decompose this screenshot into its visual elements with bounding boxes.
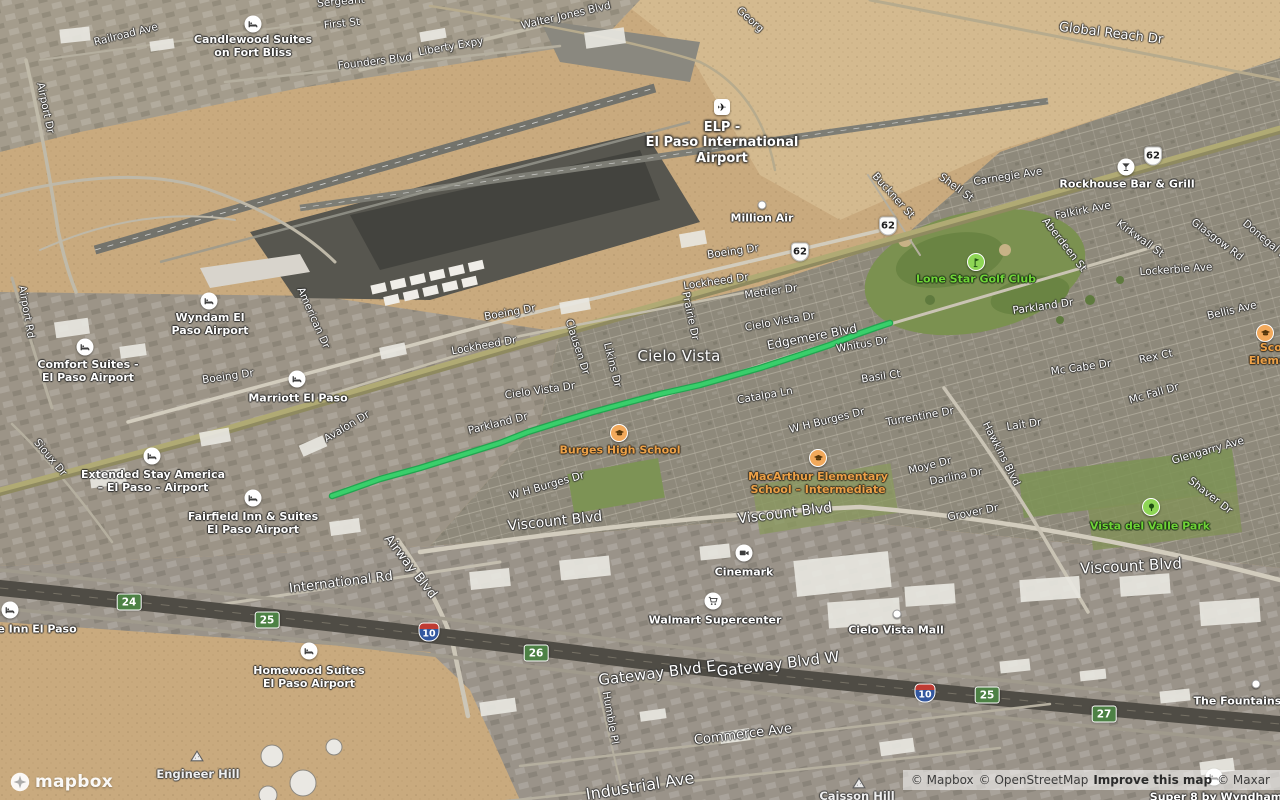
label-gateway-blvd-e: Gateway Blvd E <box>597 657 716 689</box>
mapbox-logo[interactable]: mapbox <box>10 772 113 792</box>
label-glengarry-ave: Glengarry Ave <box>1170 435 1245 468</box>
lodging-icon <box>2 602 19 619</box>
exit-24-badge: 24 <box>117 594 142 611</box>
label-cielo-vista-dr: Cielo Vista Dr <box>504 380 576 402</box>
hill-icon <box>852 777 866 789</box>
map-labels-layer: Railroad AveFirst StSergeantFounders Blv… <box>0 0 1280 800</box>
tree-icon <box>1142 498 1160 516</box>
us-62-shield: 62 <box>1144 147 1162 166</box>
label-mc-cabe-dr: Mc Cabe Dr <box>1050 358 1112 379</box>
label-sioux-dr: Sioux Dr <box>31 437 69 479</box>
label-american-dr: American Dr <box>294 285 332 350</box>
label-kirkwall-st: Kirkwall St <box>1114 218 1166 261</box>
label-buckner-st: Buckner St <box>869 171 917 222</box>
label-cinemark: Cinemark <box>715 565 774 578</box>
label-super-8-by-wyndham: Super 8 by Wyndham <box>1150 790 1280 800</box>
label-catalpa-ln: Catalpa Ln <box>736 385 794 407</box>
label-vista-del-valle-park: Vista del Valle Park <box>1090 519 1210 532</box>
attribution-bar: © Mapbox © OpenStreetMap Improve this ma… <box>903 770 1280 790</box>
school-icon <box>809 449 827 467</box>
label-comfort-suites: Comfort Suites -El Paso Airport <box>37 358 138 384</box>
label-airport-dr: Airport Dr <box>33 81 56 134</box>
mapbox-wordmark: mapbox <box>35 772 113 792</box>
label-bellis-ave: Bellis Ave <box>1206 299 1258 323</box>
dot-icon <box>1252 680 1261 689</box>
label-e-inn-el-paso: e Inn El Paso <box>0 622 77 635</box>
label-w-h-burges-dr: W H Burges Dr <box>508 469 586 502</box>
label-caisson-hill: Caisson Hill <box>819 790 894 800</box>
map-canvas[interactable]: Railroad AveFirst StSergeantFounders Blv… <box>0 0 1280 800</box>
label-railroad-ave: Railroad Ave <box>93 21 160 49</box>
label-elp: ELP -El Paso InternationalAirport <box>646 120 799 166</box>
label-mettler-dr: Mettler Dr <box>744 282 798 302</box>
label-glasgow-rd: Glasgow Rd <box>1188 216 1245 263</box>
label-shaver-dr: Shaver Dr <box>1185 475 1234 517</box>
exit-25-badge: 25 <box>255 612 280 629</box>
attribution-maxar-link[interactable]: © Maxar <box>1217 773 1270 787</box>
label-turrentine-dr: Turrentine Dr <box>885 405 955 429</box>
label-liberty-expy: Liberty Expy <box>418 35 485 59</box>
dot-icon <box>758 201 767 210</box>
label-mc-fall-dr: Mc Fall Dr <box>1128 381 1181 407</box>
label-burges-high-school: Burges High School <box>559 443 680 456</box>
label-carnegie-ave: Carnegie Ave <box>973 165 1044 188</box>
label-cielo-vista-dr: Cielo Vista Dr <box>744 310 816 335</box>
label-clausen-dr: Clausen Dr <box>562 318 592 377</box>
label-the-fountains-a: The Fountains a <box>1194 694 1280 707</box>
label-scotsdale: ScotsdaleElementary S <box>1249 341 1280 367</box>
label-donegal-st: Donegal St <box>1240 218 1280 265</box>
label-rockhouse-bar-grill: Rockhouse Bar & Grill <box>1059 177 1194 190</box>
airport-icon: ✈ <box>714 99 730 115</box>
interstate-10-shield: 10 <box>419 623 440 642</box>
label-viscount-blvd: Viscount Blvd <box>1080 554 1183 577</box>
label-candlewood-suites: Candlewood Suiteson Fort Bliss <box>194 33 312 59</box>
label-avalon-dr: Avalon Dr <box>322 408 372 445</box>
us-62-shield: 62 <box>879 217 897 236</box>
label-marriott-el-paso: Marriott El Paso <box>248 391 347 404</box>
lodging-icon <box>201 293 218 310</box>
exit-26-badge: 26 <box>524 645 549 662</box>
label-million-air: Million Air <box>731 211 794 224</box>
label-grover-dr: Grover Dr <box>947 502 1000 524</box>
label-fairfield-inn-suites: Fairfield Inn & SuitesEl Paso Airport <box>188 510 318 536</box>
school-icon <box>1256 324 1274 342</box>
label-viscount-blvd: Viscount Blvd <box>507 509 603 536</box>
label-first-st: First St <box>323 16 360 32</box>
attribution-mapbox-link[interactable]: © Mapbox <box>911 773 974 787</box>
label-viscount-blvd: Viscount Blvd <box>737 500 833 528</box>
mapbox-logo-icon <box>10 772 30 792</box>
label-sergeant: Sergeant <box>317 0 366 10</box>
label-founders-blvd: Founders Blvd <box>337 51 413 73</box>
label-parkland-dr: Parkland Dr <box>467 410 529 437</box>
label-wyndam-el: Wyndam ElPaso Airport <box>172 311 249 337</box>
label-lait-dr: Lait Dr <box>1006 416 1042 433</box>
lodging-icon <box>289 371 306 388</box>
cinema-icon <box>736 545 753 562</box>
label-boeing-dr: Boeing Dr <box>706 242 759 262</box>
label-lockerbie-ave: Lockerbie Ave <box>1139 261 1213 279</box>
label-likins-dr: Likins Dr <box>600 341 623 388</box>
label-lockheed-dr: Lockheed Dr <box>450 334 517 358</box>
lodging-icon <box>245 490 262 507</box>
golf-icon <box>967 253 985 271</box>
label-edgemere-blvd: Edgemere Blvd <box>766 321 859 353</box>
label-macarthur-elementary: MacArthur ElementarySchool – Intermediat… <box>748 470 888 496</box>
label-cielo-vista-mall: Cielo Vista Mall <box>848 623 944 636</box>
label-international-rd: International Rd <box>288 569 394 597</box>
label-gateway-blvd-w: Gateway Blvd W <box>716 648 841 681</box>
label-whitus-dr: Whitus Dr <box>835 334 888 355</box>
label-boeing-dr: Boeing Dr <box>201 367 254 387</box>
label-global-reach-dr: Global Reach Dr <box>1058 20 1164 48</box>
exit-27-badge: 27 <box>1092 706 1117 723</box>
label-boeing-dr: Boeing Dr <box>483 302 536 323</box>
label-cielo-vista: Cielo Vista <box>637 347 720 365</box>
label-w-h-burges-dr: W H Burges Dr <box>788 406 866 437</box>
label-basil-ct: Basil Ct <box>860 368 901 386</box>
lodging-icon <box>245 16 262 33</box>
dot-icon <box>893 610 902 619</box>
label-falkirk-ave: Falkirk Ave <box>1054 199 1112 222</box>
improve-this-map-link[interactable]: Improve this map <box>1093 773 1212 787</box>
exit-25-badge: 25 <box>975 687 1000 704</box>
label-prairie-dr: Prairie Dr <box>679 291 702 342</box>
lodging-icon <box>301 643 318 660</box>
label-homewood-suites: Homewood SuitesEl Paso Airport <box>253 664 364 690</box>
label-airway-blvd: Airway Blvd <box>380 532 440 602</box>
grocery-icon <box>705 593 722 610</box>
label-humble-pl: Humble Pl <box>599 691 621 746</box>
label-engineer-hill: Engineer Hill <box>156 768 239 782</box>
school-icon <box>610 424 628 442</box>
label-shell-st: Shell St <box>936 171 976 205</box>
label-walter-jones-blvd: Walter Jones Blvd <box>520 0 612 32</box>
label-industrial-ave: Industrial Ave <box>584 768 695 800</box>
interstate-10-shield: 10 <box>915 684 936 703</box>
label-extended-stay-america: Extended Stay America– El Paso – Airport <box>81 468 225 494</box>
label-hawkins-blvd: Hawkins Blvd <box>979 420 1022 488</box>
label-georg: Georg <box>734 5 766 36</box>
label-airport-rd: Airport Rd <box>15 285 37 340</box>
bar-icon <box>1118 159 1135 176</box>
label-lone-star-golf-club: Lone Star Golf Club <box>916 272 1036 285</box>
label-parkland-dr: Parkland Dr <box>1012 297 1074 318</box>
label-lockheed-dr: Lockheed Dr <box>682 271 749 293</box>
lodging-icon <box>144 448 161 465</box>
label-walmart-supercenter: Walmart Supercenter <box>649 613 782 626</box>
label-moye-dr: Moye Dr <box>907 455 953 478</box>
label-darlina-dr: Darlina Dr <box>929 466 984 489</box>
label-rex-ct: Rex Ct <box>1138 347 1174 366</box>
label-aberdeen-st: Aberdeen St <box>1039 216 1089 275</box>
us-62-shield: 62 <box>791 243 809 262</box>
hill-icon <box>190 750 204 762</box>
lodging-icon <box>77 339 94 356</box>
label-commerce-ave: Commerce Ave <box>693 721 793 748</box>
attribution-osm-link[interactable]: © OpenStreetMap <box>979 773 1089 787</box>
